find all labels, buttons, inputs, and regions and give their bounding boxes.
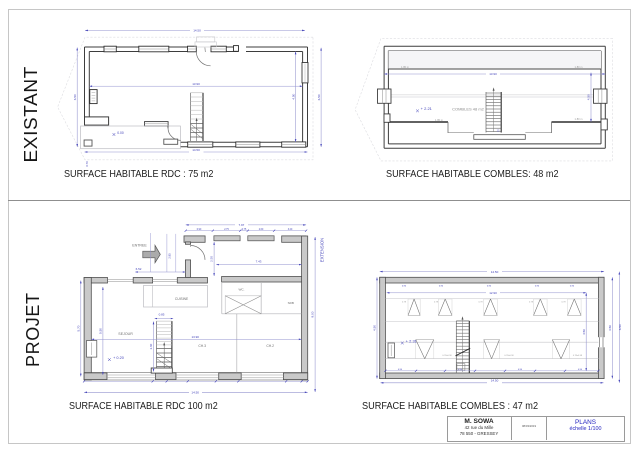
svg-text:4.50: 4.50	[587, 94, 591, 100]
svg-text:1.80 m: 1.80 m	[435, 118, 443, 122]
svg-text:CUISINE: CUISINE	[175, 297, 189, 301]
svg-text:CH.2: CH.2	[266, 344, 274, 348]
svg-text:5.70: 5.70	[76, 325, 80, 331]
svg-text:6.50: 6.50	[317, 94, 321, 100]
svg-text:0.70: 0.70	[85, 161, 89, 167]
svg-text:2.75: 2.75	[224, 229, 229, 231]
svg-text:6.50: 6.50	[618, 324, 622, 330]
svg-text:14.50: 14.50	[193, 29, 201, 33]
svg-text:7.97: 7.97	[238, 223, 244, 227]
svg-text:1.80 m: 1.80 m	[575, 65, 583, 69]
svg-text:0.78: 0.78	[402, 302, 407, 304]
svg-text:0.90: 0.90	[535, 285, 540, 287]
svg-text:0.90: 0.90	[439, 285, 444, 287]
svg-text:7.43: 7.43	[256, 259, 262, 263]
svg-text:13.90: 13.90	[191, 335, 199, 339]
svg-text:+ 2.31: + 2.31	[406, 338, 418, 343]
svg-text:ENTREE: ENTREE	[132, 243, 147, 247]
svg-text:2.60: 2.60	[259, 229, 264, 231]
svg-text:0.90: 0.90	[570, 285, 575, 287]
svg-text:14.50: 14.50	[491, 379, 499, 383]
svg-text:0.00: 0.00	[117, 131, 124, 135]
svg-text:WC.: WC.	[238, 287, 244, 291]
svg-text:4.50: 4.50	[373, 325, 377, 331]
svg-text:1.80 m: 1.80 m	[575, 117, 583, 121]
svg-text:0.90: 0.90	[197, 229, 202, 231]
svg-text:CH.3: CH.3	[198, 344, 206, 348]
svg-text:14.50: 14.50	[191, 391, 199, 395]
svg-text:2.85: 2.85	[168, 253, 172, 259]
svg-text:4.50: 4.50	[582, 329, 586, 335]
svg-text:2.60: 2.60	[149, 343, 153, 349]
svg-text:6.52: 6.52	[136, 267, 142, 271]
svg-text:13.90: 13.90	[489, 72, 497, 76]
svg-text:0.78x0.98: 0.78x0.98	[442, 355, 452, 357]
svg-text:14.50: 14.50	[192, 148, 200, 152]
svg-text:0.90: 0.90	[487, 285, 492, 287]
svg-text:0.90: 0.90	[402, 285, 407, 287]
svg-text:13: 13	[497, 130, 500, 133]
svg-text:4.50: 4.50	[608, 325, 612, 331]
svg-text:5.50: 5.50	[99, 328, 103, 334]
svg-text:0.78x0.98: 0.78x0.98	[504, 355, 514, 357]
svg-text:0.78x0.98: 0.78x0.98	[573, 355, 583, 357]
svg-text:2.50: 2.50	[210, 256, 214, 262]
svg-text:0.78: 0.78	[434, 302, 439, 304]
svg-text:+ 0.20: + 0.20	[113, 356, 124, 360]
svg-text:13.90: 13.90	[192, 82, 200, 86]
svg-text:+ 2.21: + 2.21	[421, 106, 433, 111]
svg-text:SDB: SDB	[288, 301, 294, 305]
svg-text:0.85: 0.85	[159, 313, 165, 317]
svg-text:COMBLES 48 m2: COMBLES 48 m2	[452, 107, 485, 112]
svg-text:14.50: 14.50	[491, 270, 499, 274]
svg-text:4.50: 4.50	[291, 93, 295, 99]
svg-text:0.78: 0.78	[529, 302, 534, 304]
svg-text:6.50: 6.50	[73, 94, 77, 100]
svg-text:3.20: 3.20	[288, 229, 293, 231]
svg-text:1.80 m: 1.80 m	[401, 65, 409, 69]
svg-text:0.78: 0.78	[561, 302, 566, 304]
svg-text:8.00: 8.00	[311, 311, 315, 317]
svg-text:0.75: 0.75	[242, 229, 247, 231]
svg-text:12.90: 12.90	[489, 291, 497, 295]
svg-text:0.78: 0.78	[478, 302, 483, 304]
svg-text:SEJOUR: SEJOUR	[118, 332, 133, 336]
svg-text:EXTENSION: EXTENSION	[320, 238, 325, 262]
